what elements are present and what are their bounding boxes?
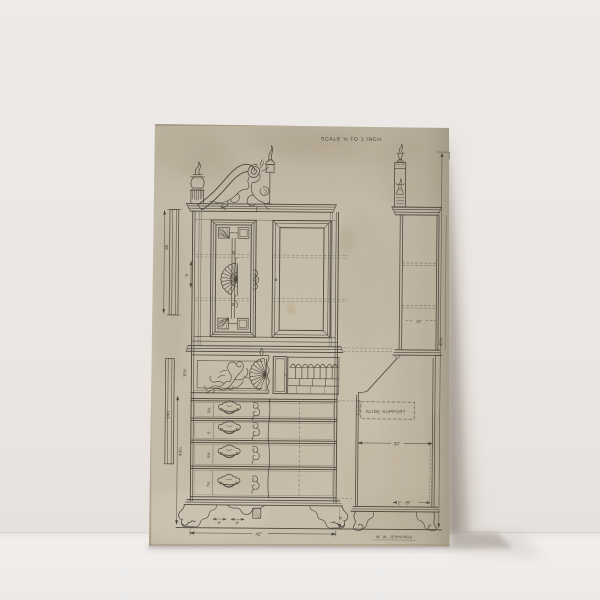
- svg-text:22″: 22″: [394, 441, 401, 446]
- svg-text:10½: 10½: [182, 368, 187, 377]
- svg-text:24¾: 24¾: [165, 410, 170, 419]
- svg-text:43¼: 43¼: [178, 447, 183, 456]
- svg-text:36: 36: [164, 244, 169, 249]
- svg-text:9″: 9″: [236, 520, 240, 525]
- svg-text:42″: 42″: [255, 532, 262, 537]
- svg-text:6½: 6½: [206, 451, 211, 457]
- svg-text:SLIDE SUPPORT: SLIDE SUPPORT: [366, 409, 406, 414]
- svg-text:2″: 2″: [398, 500, 402, 505]
- svg-text:5½: 5½: [206, 407, 211, 413]
- svg-text:SCALE ⅝ TO 1 INCH: SCALE ⅝ TO 1 INCH: [321, 136, 382, 143]
- svg-text:8″: 8″: [406, 501, 411, 506]
- svg-text:8″: 8″: [338, 515, 343, 519]
- svg-text:7¼: 7¼: [206, 481, 211, 487]
- svg-text:15″: 15″: [416, 319, 423, 324]
- svg-text:W. W. JENNINGS: W. W. JENNINGS: [376, 534, 413, 539]
- svg-text:9″: 9″: [218, 520, 222, 525]
